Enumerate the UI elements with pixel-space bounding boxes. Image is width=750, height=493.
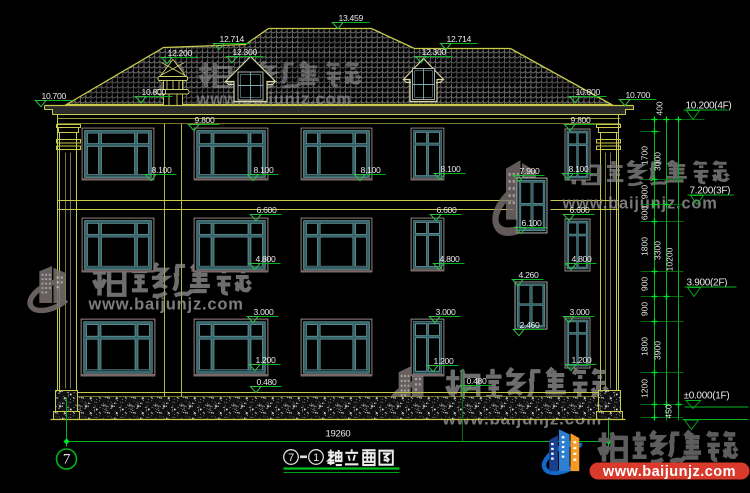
svg-text:900: 900 (640, 277, 650, 291)
svg-text:1700: 1700 (640, 146, 650, 165)
svg-text:1.200: 1.200 (572, 355, 593, 365)
svg-text:1800: 1800 (640, 337, 650, 356)
svg-text:3.000: 3.000 (436, 307, 457, 317)
svg-text:10.700: 10.700 (626, 90, 651, 100)
svg-text:4.260: 4.260 (519, 270, 540, 280)
svg-text:1.200: 1.200 (434, 356, 455, 366)
svg-text:9.800: 9.800 (195, 115, 216, 125)
svg-text:10.800: 10.800 (142, 87, 167, 97)
svg-text:900: 900 (640, 302, 650, 316)
svg-text:4.800: 4.800 (440, 254, 461, 264)
svg-text:7: 7 (288, 452, 294, 464)
svg-text:±0.000(1F): ±0.000(1F) (684, 391, 730, 402)
svg-text:1: 1 (313, 452, 319, 464)
svg-text:3.000: 3.000 (570, 307, 591, 317)
svg-text:1800: 1800 (640, 237, 650, 256)
svg-text:450: 450 (664, 404, 674, 418)
svg-text:www.baijunjz.com: www.baijunjz.com (88, 296, 244, 314)
svg-text:12.300: 12.300 (422, 47, 447, 57)
svg-text:0.480: 0.480 (257, 377, 278, 387)
svg-text:2.460: 2.460 (520, 320, 541, 330)
svg-text:10.800: 10.800 (576, 87, 601, 97)
svg-text:3300: 3300 (653, 241, 663, 260)
svg-text:900: 900 (640, 185, 650, 199)
svg-text:0.480: 0.480 (467, 376, 488, 386)
svg-text:6.600: 6.600 (437, 205, 458, 215)
svg-text:3900: 3900 (653, 341, 663, 360)
svg-text:400: 400 (655, 101, 665, 115)
svg-text:4.800: 4.800 (256, 254, 277, 264)
svg-text:8.100: 8.100 (254, 165, 275, 175)
svg-text:1200: 1200 (640, 379, 650, 398)
svg-text:8.100: 8.100 (441, 164, 462, 174)
svg-text:7.900: 7.900 (520, 166, 541, 176)
svg-text:12.714: 12.714 (447, 34, 472, 44)
svg-text:12.200: 12.200 (168, 48, 193, 58)
svg-text:9.800: 9.800 (571, 115, 592, 125)
svg-text:19260: 19260 (326, 429, 351, 440)
svg-text:13.459: 13.459 (339, 13, 364, 23)
svg-text:8.100: 8.100 (152, 165, 173, 175)
svg-text:8.100: 8.100 (361, 165, 382, 175)
svg-text:10200: 10200 (665, 247, 675, 271)
svg-text:12.300: 12.300 (233, 47, 258, 57)
svg-text:7: 7 (63, 452, 71, 468)
svg-text:6.600: 6.600 (257, 205, 278, 215)
svg-text:12.714: 12.714 (220, 34, 245, 44)
svg-text:3000: 3000 (653, 152, 663, 171)
svg-text:4.800: 4.800 (572, 254, 593, 264)
svg-text:8.100: 8.100 (569, 164, 590, 174)
svg-text:6.100: 6.100 (522, 218, 543, 228)
svg-text:600: 600 (640, 206, 650, 220)
svg-text:1.200: 1.200 (256, 355, 277, 365)
svg-text:www.baijunjz.com: www.baijunjz.com (602, 464, 736, 480)
svg-text:10.700: 10.700 (42, 91, 67, 101)
svg-text:6.600: 6.600 (570, 205, 591, 215)
svg-text:3.000: 3.000 (254, 307, 275, 317)
